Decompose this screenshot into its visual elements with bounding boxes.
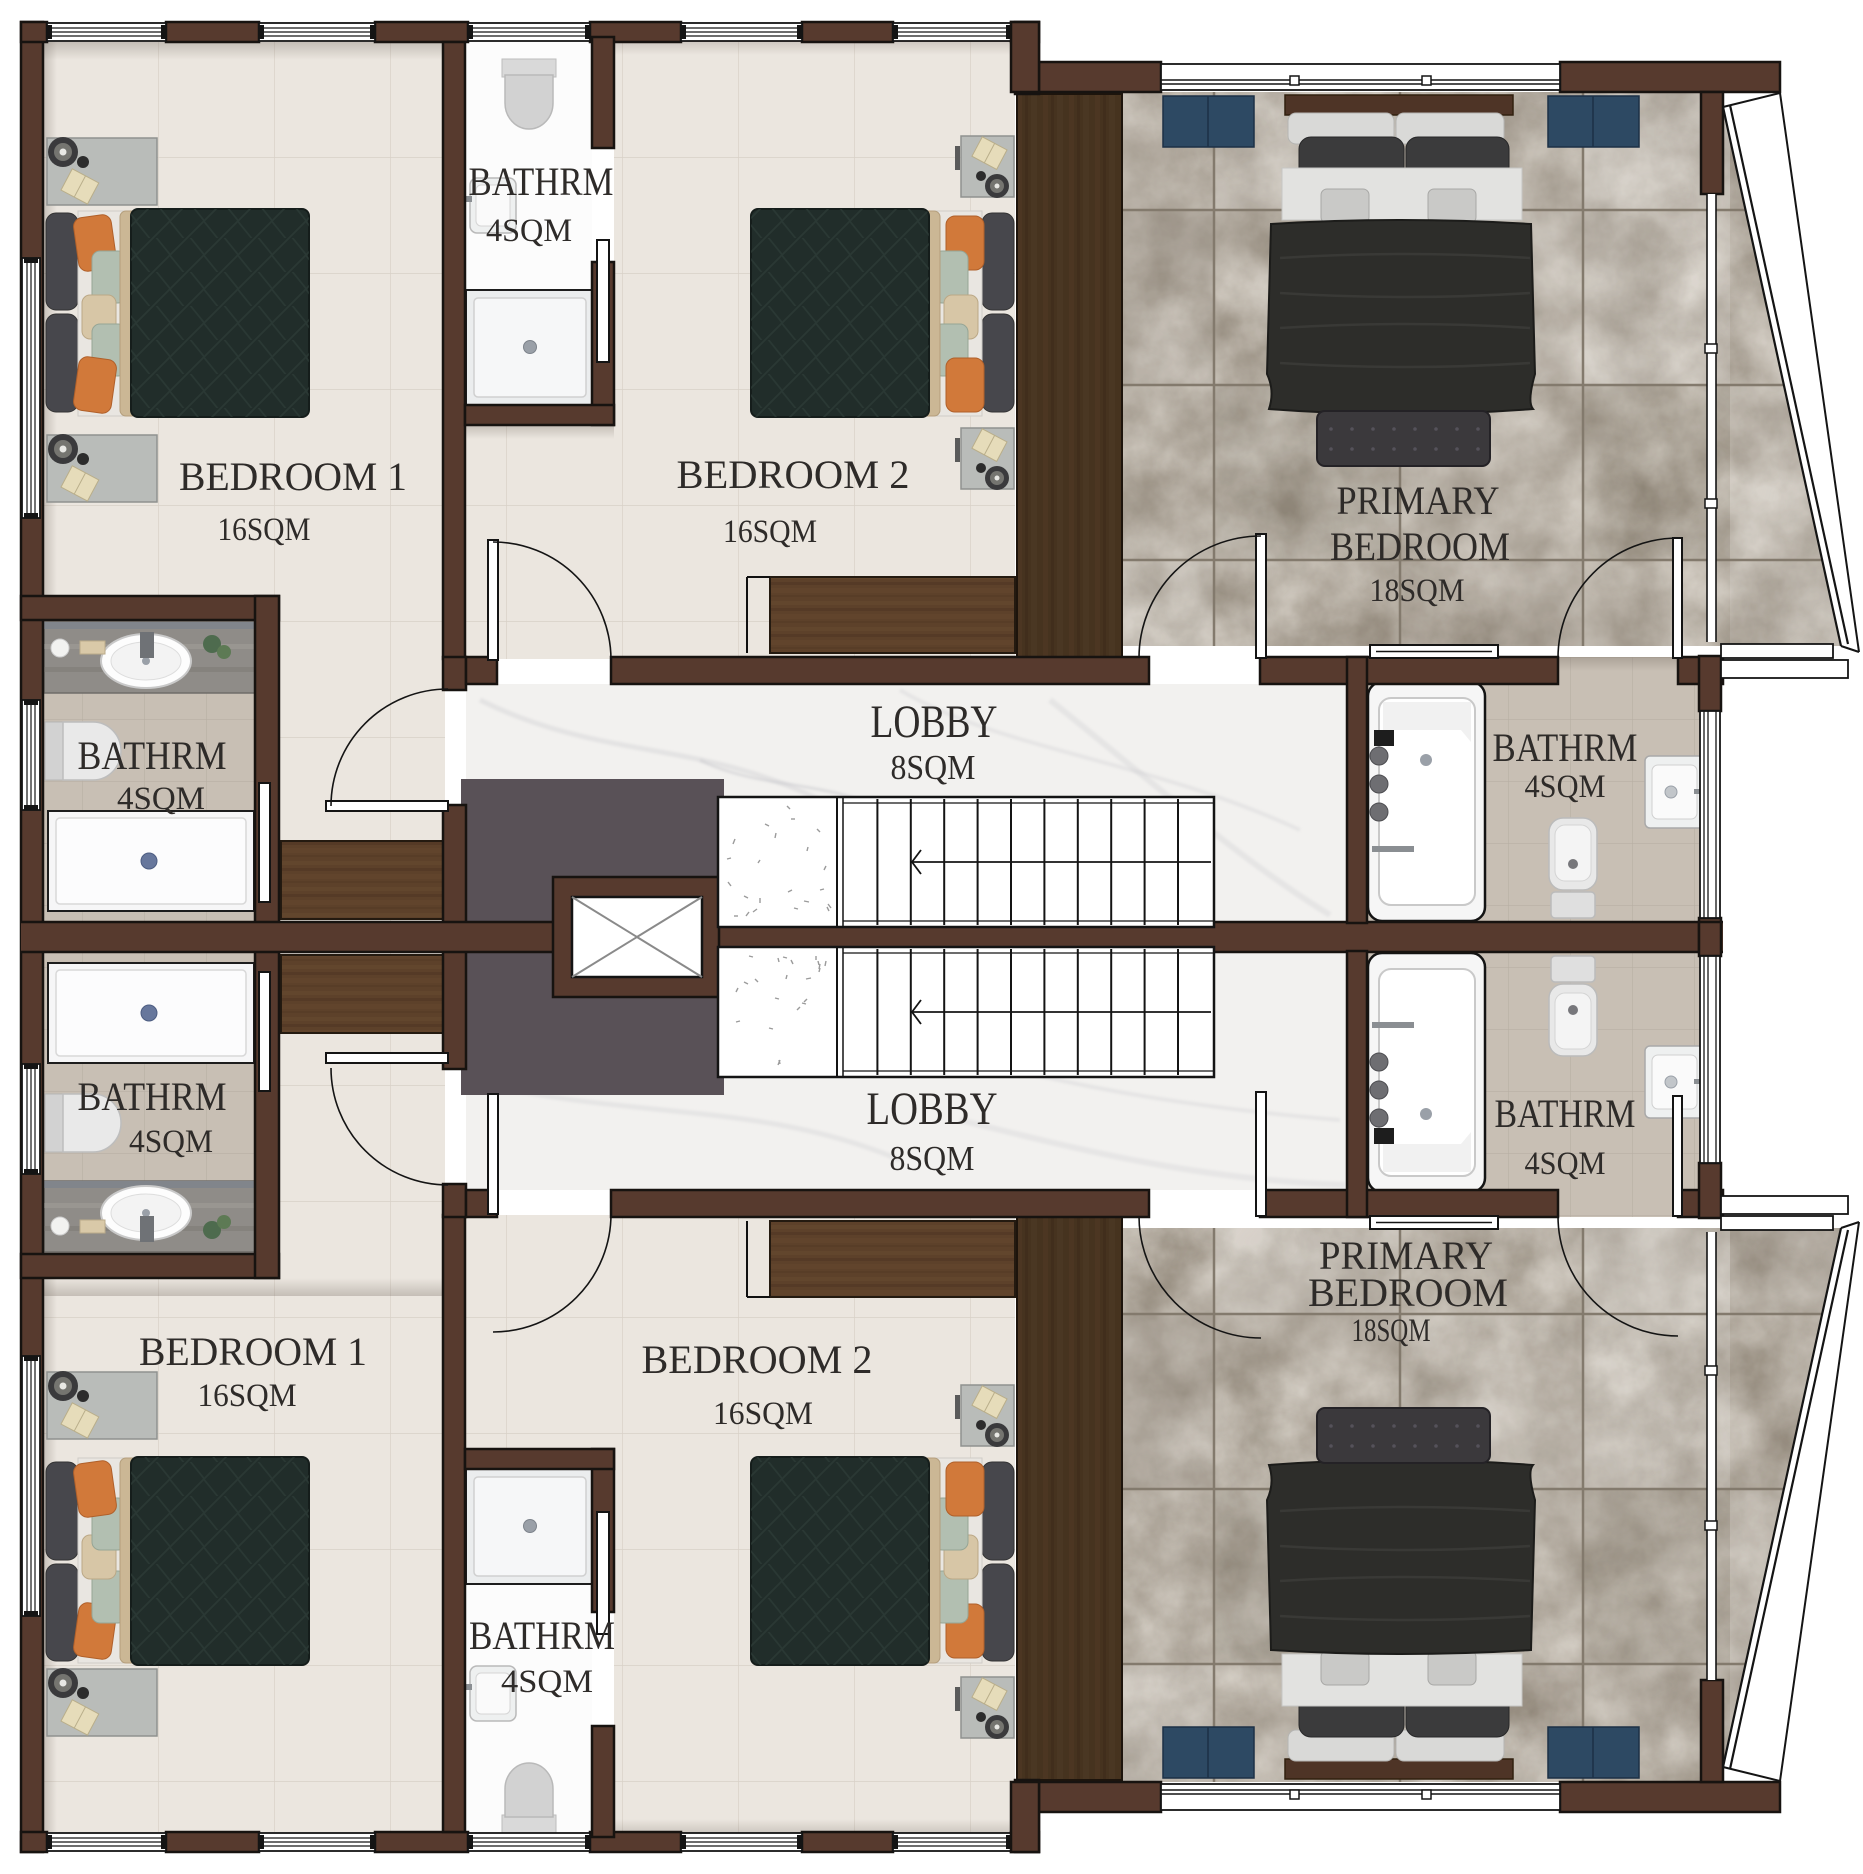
- svg-text:16SQM: 16SQM: [723, 514, 817, 550]
- svg-text:BATHRM: BATHRM: [1493, 725, 1638, 770]
- svg-text:BATHRM: BATHRM: [1495, 1091, 1636, 1136]
- svg-text:BATHRM: BATHRM: [78, 733, 227, 778]
- svg-text:BEDROOM: BEDROOM: [1308, 1270, 1508, 1315]
- svg-text:BATHRM: BATHRM: [469, 159, 614, 204]
- svg-text:BATHRM: BATHRM: [469, 1613, 615, 1658]
- svg-text:16SQM: 16SQM: [198, 1378, 297, 1414]
- svg-text:BEDROOM 2: BEDROOM 2: [677, 452, 910, 497]
- svg-text:4SQM: 4SQM: [129, 1124, 213, 1160]
- svg-text:LOBBY: LOBBY: [867, 1083, 998, 1135]
- svg-text:4SQM: 4SQM: [486, 213, 572, 249]
- svg-text:BEDROOM 1: BEDROOM 1: [179, 454, 407, 499]
- svg-text:PRIMARY: PRIMARY: [1337, 478, 1500, 523]
- svg-text:BEDROOM: BEDROOM: [1330, 524, 1510, 569]
- svg-text:16SQM: 16SQM: [713, 1396, 813, 1432]
- svg-text:4SQM: 4SQM: [501, 1664, 593, 1700]
- svg-text:4SQM: 4SQM: [117, 781, 205, 817]
- svg-text:BATHRM: BATHRM: [78, 1074, 227, 1119]
- svg-text:4SQM: 4SQM: [1525, 1146, 1606, 1182]
- svg-text:16SQM: 16SQM: [218, 512, 311, 548]
- svg-text:18SQM: 18SQM: [1352, 1313, 1431, 1349]
- svg-text:4SQM: 4SQM: [1525, 769, 1606, 805]
- svg-text:8SQM: 8SQM: [890, 1139, 975, 1178]
- svg-text:BEDROOM 2: BEDROOM 2: [642, 1337, 873, 1382]
- svg-text:8SQM: 8SQM: [891, 748, 976, 787]
- svg-text:18SQM: 18SQM: [1370, 573, 1465, 609]
- svg-text:BEDROOM 1: BEDROOM 1: [139, 1329, 367, 1374]
- svg-text:LOBBY: LOBBY: [871, 696, 998, 748]
